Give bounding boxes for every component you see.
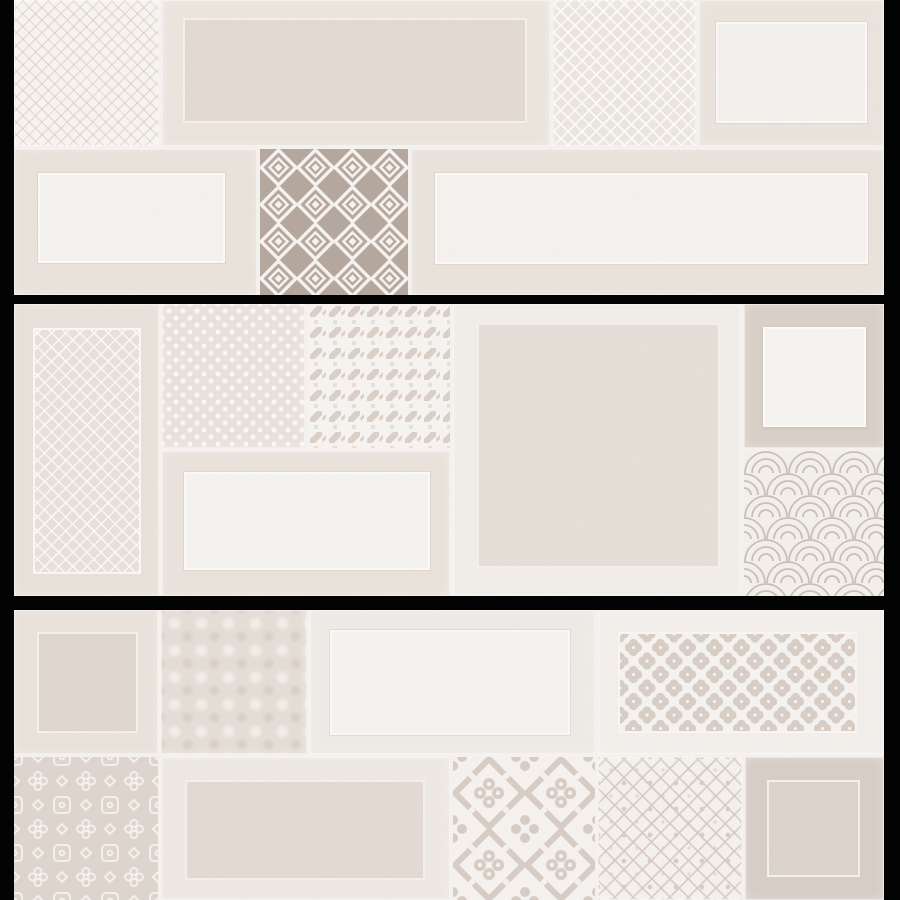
tile-tall-lattice-framed — [14, 304, 159, 596]
tile-diamond-squares — [260, 149, 408, 295]
tile-framed-beige-wide — [162, 0, 550, 146]
tile-strip-bottom — [14, 610, 884, 900]
tile-framed-blank-top — [310, 610, 595, 754]
tile-framed-blank-wide-inner-frame — [435, 173, 868, 264]
tile-framed-beige-bottom-inner-frame — [185, 780, 425, 880]
tile-framed-line-square — [745, 757, 884, 900]
pattern-swatch — [260, 149, 408, 295]
tile-framed-dark-square — [14, 610, 158, 754]
tile-framed-beige-wide-inner-frame — [183, 18, 527, 123]
tile-framed-white-square-inner-frame — [763, 327, 866, 427]
pattern-swatch — [308, 304, 450, 448]
tile-big-framed-square — [453, 304, 741, 596]
tile-framed-blank-inner-frame — [184, 472, 430, 570]
tile-framed-white-square — [744, 304, 884, 448]
tile-framed-blank-left-inner-frame — [38, 173, 225, 263]
tile-framed-dark-square-inner-frame — [37, 632, 138, 733]
pattern-swatch — [744, 451, 884, 596]
tile-lattice — [553, 0, 696, 146]
pattern-swatch — [453, 757, 595, 900]
tile-framed-blank-small-inner-frame — [716, 22, 867, 123]
tile-moroccan — [453, 757, 595, 900]
tile-framed-beige-bottom — [161, 757, 450, 900]
tile-diamond-ikat — [598, 757, 742, 900]
tile-arabesque — [14, 757, 158, 900]
tile-strip-middle — [14, 304, 884, 596]
tile-tall-lattice-framed-inner-frame — [33, 328, 141, 574]
tile-framed-line-square-inner-frame — [767, 780, 860, 877]
tile-crosshatch — [14, 0, 159, 146]
tile-scallop — [744, 451, 884, 596]
tile-strip-top — [14, 0, 884, 295]
tile-damask-texture — [161, 610, 307, 754]
tile-big-framed-square-inner-frame — [477, 323, 720, 568]
tile-framed-blank-top-inner-frame — [330, 630, 570, 735]
tile-framed-blank — [162, 451, 450, 596]
tile-framed-blank-left — [14, 149, 257, 295]
tile-collage — [0, 0, 900, 900]
tile-dot-lattice — [162, 304, 305, 448]
tile-framed-blank-wide — [411, 149, 884, 295]
pattern-swatch — [620, 634, 855, 731]
pattern-swatch — [14, 757, 158, 900]
tile-houndstooth — [308, 304, 450, 448]
tile-quatrefoil-panel-inner-frame — [618, 632, 857, 733]
tile-quatrefoil-panel — [598, 610, 884, 754]
tile-framed-blank-small — [699, 0, 884, 146]
